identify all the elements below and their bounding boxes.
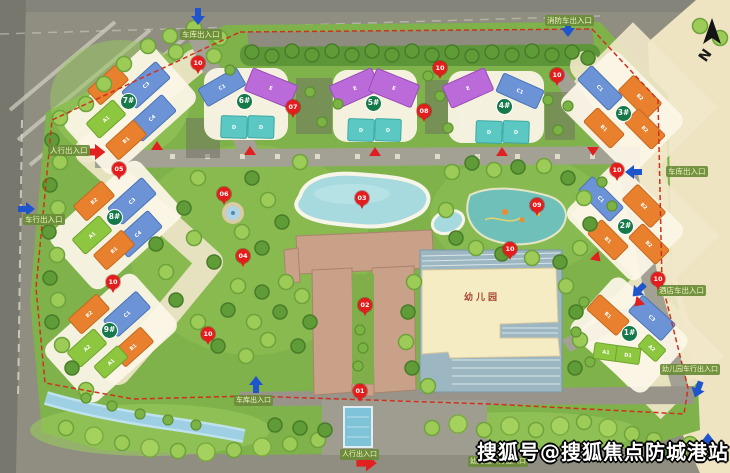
building-badge-3: 3# [615, 105, 632, 122]
swimming-pool [344, 407, 372, 447]
entrance-label-fire-truck: 消防车出入口 [545, 15, 594, 26]
building-badge-8: 8# [106, 209, 123, 226]
building-badge-7: 7# [120, 93, 137, 110]
svg-text:D: D [232, 125, 236, 131]
svg-text:D: D [359, 128, 363, 134]
map-pin-10d: 10 [610, 163, 624, 177]
entrance-label-right-garage: 车库出入口 [666, 166, 708, 177]
map-pin-10b: 10 [433, 61, 447, 75]
entrance-label-top-garage: 车库出入口 [180, 29, 222, 40]
svg-text:D1: D1 [624, 352, 633, 359]
svg-text:D: D [386, 128, 390, 134]
building-badge-6: 6# [236, 93, 253, 110]
map-pin-10e: 10 [503, 242, 517, 256]
map-pin-10f: 10 [651, 272, 665, 286]
svg-text:D: D [259, 125, 263, 131]
building-badge-2: 2# [617, 218, 634, 235]
svg-text:D: D [514, 130, 518, 136]
site-plan-artwork: B2 C3 A1 C4 B1 B2 C3 A1 C4 B1 B2 [0, 0, 730, 473]
map-pin-10g: 10 [106, 275, 120, 289]
entrance-label-left-vehicle: 车行出入口 [23, 214, 65, 225]
map-pin-10c: 10 [550, 68, 564, 82]
map-pin-04: 04 [236, 249, 250, 263]
entrance-label-bottom-pedestrian: 人行出入口 [340, 449, 379, 460]
kindergarten-building [420, 250, 562, 392]
map-pin-01: 01 [353, 384, 367, 398]
building-badge-5: 5# [365, 95, 382, 112]
map-pin-05: 05 [112, 162, 126, 176]
map-pin-03: 03 [355, 191, 369, 205]
building-badge-9: 9# [101, 322, 118, 339]
map-pin-07: 07 [286, 100, 300, 114]
watermark: 搜狐号@搜狐焦点防城港站 [477, 436, 729, 465]
entrance-label-bottom-garage: 车库出入口 [234, 395, 273, 406]
svg-text:D: D [487, 130, 491, 136]
map-pin-10h: 10 [201, 327, 215, 341]
map-pin-06: 06 [217, 187, 231, 201]
entrance-label-left-pedestrian: 人行出入口 [48, 145, 90, 156]
map-pin-10a: 10 [191, 56, 205, 70]
entrance-label-hotel-vehicle: 酒店车出入口 [657, 285, 706, 296]
site-plan-image: B2 C3 A1 C4 B1 B2 C3 A1 C4 B1 B2 [0, 0, 730, 473]
map-pin-02: 02 [358, 298, 372, 312]
koi-pond [467, 189, 566, 245]
kindergarten-label: 幼儿园 [464, 290, 500, 303]
svg-text:A1: A1 [602, 349, 611, 356]
map-pin-09: 09 [530, 198, 544, 212]
map-pin-08: 08 [417, 104, 431, 118]
building-badge-1: 1# [621, 325, 638, 342]
building-badge-4: 4# [496, 98, 513, 115]
entrance-label-kindergarten-vehicle: 幼儿园车行出入口 [660, 364, 720, 375]
